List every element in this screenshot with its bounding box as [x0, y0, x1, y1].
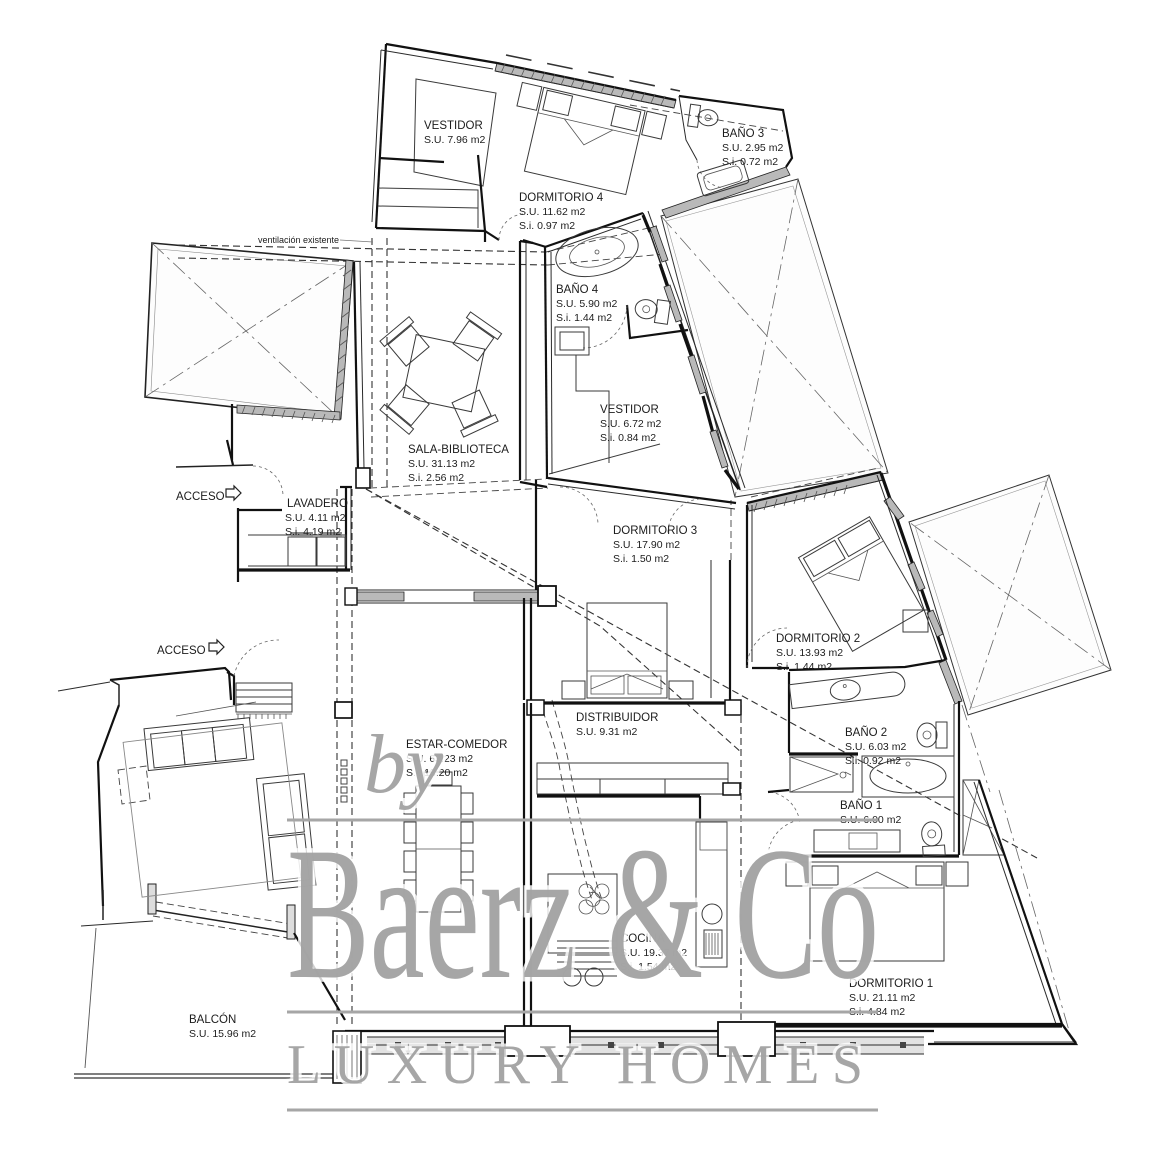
- svg-text:S.U. 31.13 m2: S.U. 31.13 m2: [408, 458, 475, 470]
- svg-text:S.i. 0.92 m2: S.i. 0.92 m2: [845, 755, 901, 767]
- svg-text:by: by: [364, 718, 444, 811]
- svg-text:S.U. 11.62 m2: S.U. 11.62 m2: [519, 206, 585, 218]
- svg-text:S.U. 5.90 m2: S.U. 5.90 m2: [556, 298, 617, 310]
- svg-text:BAÑO 4: BAÑO 4: [556, 283, 599, 296]
- svg-text:S.U. 17.90 m2: S.U. 17.90 m2: [613, 539, 680, 551]
- svg-text:S.U. 9.31 m2: S.U. 9.31 m2: [576, 726, 637, 738]
- svg-text:S.i. 2.56 m2: S.i. 2.56 m2: [408, 472, 464, 484]
- svg-text:DORMITORIO 3: DORMITORIO 3: [613, 525, 697, 537]
- svg-text:DORMITORIO 4: DORMITORIO 4: [519, 192, 604, 204]
- svg-text:Baerz & Co: Baerz & Co: [287, 809, 879, 1019]
- svg-text:BALCÓN: BALCÓN: [189, 1013, 236, 1026]
- svg-text:S.U. 7.96 m2: S.U. 7.96 m2: [424, 134, 485, 146]
- svg-text:BAÑO 2: BAÑO 2: [845, 726, 887, 739]
- svg-text:S.i. 4.19 m2: S.i. 4.19 m2: [285, 526, 341, 538]
- svg-text:S.U. 6.72 m2: S.U. 6.72 m2: [600, 418, 661, 430]
- svg-text:SALA-BIBLIOTECA: SALA-BIBLIOTECA: [408, 444, 509, 456]
- svg-text:S.i. 1.44 m2: S.i. 1.44 m2: [776, 661, 832, 673]
- svg-text:S.i. 0.84 m2: S.i. 0.84 m2: [600, 432, 656, 444]
- svg-text:ACCESO: ACCESO: [176, 491, 225, 503]
- svg-text:S.U. 15.96 m2: S.U. 15.96 m2: [189, 1028, 256, 1040]
- svg-text:S.U. 2.95 m2: S.U. 2.95 m2: [722, 142, 783, 154]
- svg-text:VESTIDOR: VESTIDOR: [424, 120, 483, 132]
- svg-text:S.i. 0.72 m2: S.i. 0.72 m2: [722, 156, 778, 168]
- svg-text:DORMITORIO 2: DORMITORIO 2: [776, 633, 860, 645]
- svg-text:ACCESO: ACCESO: [157, 645, 206, 657]
- svg-text:LAVADERO: LAVADERO: [287, 498, 348, 510]
- svg-text:S.U. 4.11 m2: S.U. 4.11 m2: [285, 512, 346, 524]
- svg-text:S.i. 0.97 m2: S.i. 0.97 m2: [519, 220, 575, 232]
- svg-text:S.i. 1.50 m2: S.i. 1.50 m2: [613, 553, 669, 565]
- svg-text:LUXURY HOMES: LUXURY HOMES: [287, 1034, 877, 1096]
- svg-text:S.U. 6.03 m2: S.U. 6.03 m2: [845, 741, 906, 753]
- svg-text:S.i. 1.44 m2: S.i. 1.44 m2: [556, 312, 612, 324]
- svg-text:BAÑO 3: BAÑO 3: [722, 127, 764, 140]
- svg-text:ventilación existente: ventilación existente: [258, 235, 339, 245]
- svg-text:S.U. 13.93 m2: S.U. 13.93 m2: [776, 647, 843, 659]
- svg-text:VESTIDOR: VESTIDOR: [600, 404, 659, 416]
- svg-text:DISTRIBUIDOR: DISTRIBUIDOR: [576, 712, 658, 724]
